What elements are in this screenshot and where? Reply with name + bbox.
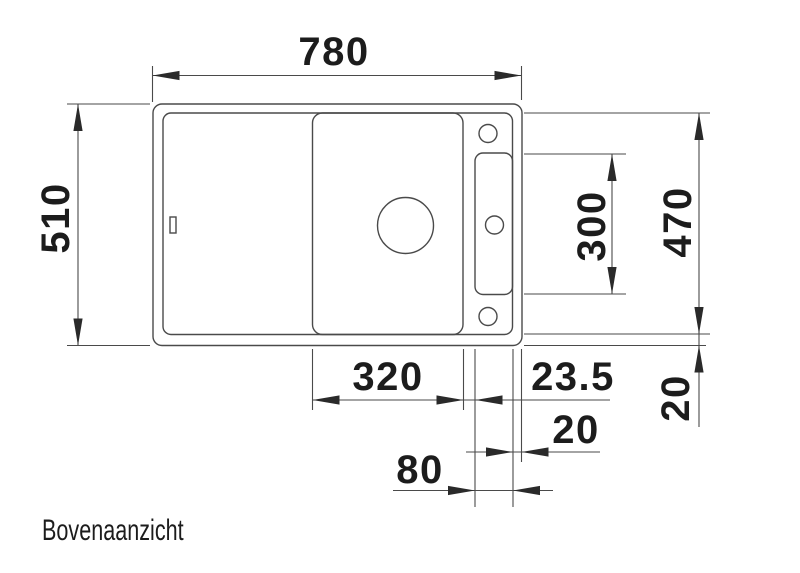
arrowhead-bottom [694, 346, 703, 373]
dim-label-inner-depth: 470 [656, 186, 700, 257]
drain-hole [378, 198, 434, 254]
dimension-ledge-length: 300 [524, 154, 626, 294]
arrowhead-middle [694, 307, 703, 334]
technical-drawing-page: 780 510 300 470 20 320 [0, 0, 800, 573]
dimension-total-width: 780 [153, 30, 522, 102]
dimension-ledge-width: 80 [393, 448, 553, 495]
sink-top-view-drawing: 780 510 300 470 20 320 [0, 0, 800, 573]
sink-outline-group [153, 104, 522, 346]
arrowhead-top [73, 104, 82, 131]
main-bowl [313, 113, 464, 335]
arrowhead-left [153, 71, 180, 80]
sink-outer-outline [153, 104, 522, 346]
dim-label-bowl-ledge-gap: 23.5 [531, 355, 615, 399]
view-caption: Bovenaanzicht [42, 512, 184, 546]
arrowhead-gap-right [476, 395, 503, 404]
tap-hole-middle [486, 216, 504, 234]
overflow-marker [170, 217, 176, 233]
arrowhead-right-outside [522, 447, 549, 456]
tap-hole-top [479, 125, 497, 143]
dim-label-total-width: 780 [298, 30, 369, 74]
arrowhead-left-outside [448, 486, 475, 495]
arrowhead-top [607, 154, 616, 181]
arrowhead-left [313, 395, 340, 404]
dimension-bowl-width-and-gap: 320 23.5 [313, 349, 615, 410]
arrowhead-right [437, 395, 464, 404]
dim-label-bowl-width: 320 [352, 355, 423, 399]
arrowhead-bottom [607, 267, 616, 294]
arrowhead-bottom [73, 319, 82, 346]
dim-label-ledge-width: 80 [396, 448, 444, 492]
tap-hole-bottom [479, 308, 497, 326]
dim-label-ledge-length: 300 [570, 190, 614, 261]
dim-label-rim-bottom: 20 [552, 408, 600, 452]
arrowhead-top [694, 113, 703, 140]
accessory-ledge-recess [475, 153, 513, 295]
dimension-total-depth: 510 [34, 104, 150, 346]
sink-inner-rim [163, 113, 513, 335]
dim-label-total-depth: 510 [34, 182, 78, 253]
dim-label-rim-right: 20 [654, 374, 698, 422]
arrowhead-left-outside [486, 447, 513, 456]
arrowhead-right [495, 71, 522, 80]
arrowhead-right-outside [513, 486, 540, 495]
